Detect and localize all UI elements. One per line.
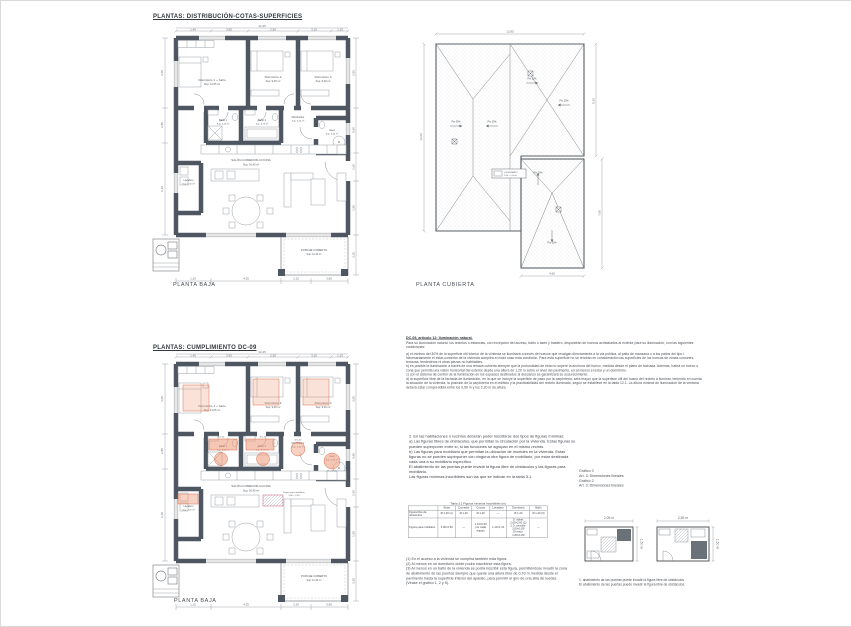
legend-sub: 1,00 × 1,00 m (504, 174, 517, 177)
dimension-label: 4,60 (549, 272, 555, 276)
dimension-label: 12,85 (506, 30, 514, 34)
table-cell: D. doble: 2,60×2,60 (2) 1 D. sencillo: 2… (507, 518, 530, 538)
grafico-labels-text: Gráfico 3 Art. 3: Dimensiones lineales G… (579, 469, 669, 488)
dimension-label: 2,65 m (678, 516, 689, 520)
slope-label: Pte 30% (527, 78, 537, 81)
floor-plan-compliance: Ø 1,20 Ø 1,20 Ø 1,20 (3) Ø 1,20 Figura p… (151, 349, 401, 617)
diagram-caption-2: El abatimiento de las puertas puede inva… (579, 582, 714, 586)
table-cell: Ø 1,20 (472, 510, 490, 518)
slope-label: Pte 30% (533, 172, 543, 175)
table-row-label: Figura para mobiliario (408, 518, 438, 538)
figures-rules-text: 2. En las habitaciones o recintos deberá… (409, 434, 576, 480)
grafico-labels: Gráfico 3 Art. 3: Dimensiones lineales G… (579, 469, 669, 488)
figure-label: Ø 1,20 (218, 437, 225, 439)
bathroom-diagram-2: 2,65 m 1,50 m (649, 513, 719, 575)
drawing-sheet: 12,45 1,40 3,65 2,50 3,10 1,15 3,60 2,85… (0, 0, 851, 627)
dimension-label: 2,05 m (604, 516, 615, 520)
figure-label: Ø 1,20 (260, 437, 267, 439)
plan2-caption: PLANTA BAJA (174, 598, 217, 604)
dimension-label: 8,10 (592, 98, 596, 104)
table-cell: — (530, 518, 548, 538)
section1-title: PLANTAS: DISTRIBUCIÓN-COTAS-SUPERFICIES (153, 14, 302, 20)
bathroom-diagram-1: 2,05 m 1,50 m (577, 513, 643, 575)
table-cell: — (456, 518, 472, 538)
table-cell: Ø 1,20 (1) (438, 510, 456, 518)
diagram-captions: 1. abatimiento de las puertas puede inva… (579, 578, 714, 587)
floor-plan-distribution (151, 23, 401, 291)
table-figuras: Tabla 3.1 Figuras mínimas inscribibles (… (408, 502, 548, 538)
regulation-body: a) el mínimo del 30% de la superficie út… (406, 352, 704, 390)
footnotes-block: (1) En el acceso a la vivienda se cumpli… (406, 557, 568, 586)
figures-rules-block: 2. En las habitaciones o recintos deberá… (409, 434, 576, 480)
roof-plan: 12,85 13,60 8,10 7,95 4,60 Pte 30% Pte 3… (406, 21, 636, 289)
regulation-title: DC-09, artículo 12: Iluminación natural. (406, 336, 704, 340)
dimension-label: 1,50 m (640, 539, 644, 550)
figure-label: Figura para mobiliario (283, 491, 305, 494)
figure-label: Ø 1,20 (295, 440, 302, 442)
slope-label: Pte 30% (487, 121, 497, 124)
legend-title: LUCERNARIO (504, 171, 518, 174)
dimension-label: 1,50 m (716, 539, 720, 550)
table-row: Figura libre de obstáculos Ø 1,20 (1) Ø … (408, 510, 547, 518)
figure-label: 3,00 × 2,50 (288, 494, 300, 497)
table-cell: 1,10×0,60 por cada equipo (472, 518, 490, 538)
slope-label: Pte 30% (451, 121, 461, 124)
roof-legend: LUCERNARIO 1,00 × 1,00 m (492, 169, 526, 178)
table-cell: 1,10×1,10 (489, 518, 507, 538)
table-cell: 3,00×2,50 (438, 518, 456, 538)
table-cell: Ø 1,20 (507, 510, 530, 518)
table-cell: — (489, 510, 507, 518)
plan1-caption: PLANTA BAJA (173, 282, 216, 288)
table-row: Figura para mobiliario 3,00×2,50 — 1,10×… (408, 518, 547, 538)
figure-label: Ø 1,20 (3) (327, 471, 337, 473)
regulation-block: DC-09, artículo 12: Iluminación natural.… (406, 336, 704, 389)
roof-caption: PLANTA CUBIERTA (416, 282, 475, 288)
regulation-intro: Para su iluminación natural, los recinto… (406, 341, 704, 349)
footnotes-text: (1) En el acceso a la vivienda se cumpli… (406, 557, 568, 586)
table-cell: Ø 1,20 (3) (530, 510, 548, 518)
dimension-label: 7,95 (598, 210, 602, 216)
slope-label: Pte 30% (547, 242, 557, 245)
table-row-label: Figura libre de obstáculos (408, 510, 438, 518)
table-cell: Ø 1,20 (456, 510, 472, 518)
dimension-label: 13,60 (419, 133, 423, 141)
slope-label: Pte 30% (559, 100, 569, 103)
